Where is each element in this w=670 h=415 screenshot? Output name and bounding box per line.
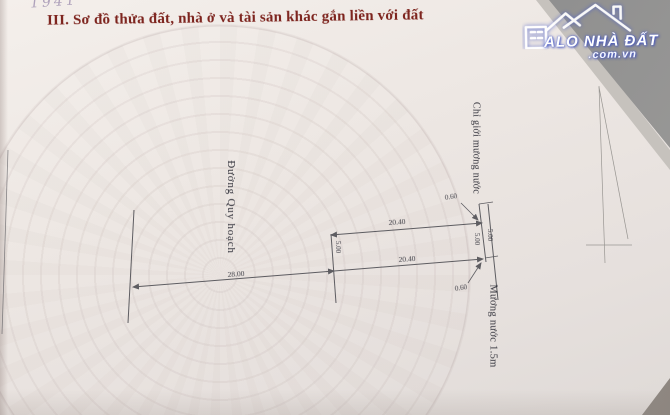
road-left-edge-line: [2, 150, 8, 334]
dimension-distance-to-road: 28.00: [227, 269, 244, 279]
alo-nha-dat-logo: ALO NHÀ ĐẤT .com.vn: [521, 0, 670, 73]
planned-road-edge-line: [128, 210, 134, 323]
gap-tick-bottom: [485, 256, 498, 258]
dimension-plot-bottom: 20.40: [398, 254, 415, 264]
dimension-plot-left: 5.00: [334, 241, 342, 253]
gap-arrow-bottom: [468, 263, 481, 283]
dimension-channel-boundary: 5.00: [486, 229, 494, 241]
plot-top-edge-line: [331, 223, 482, 235]
dimension-plot-right: 5.00: [473, 233, 481, 245]
channel-boundary-label: Chỉ giới mương nước: [471, 102, 482, 194]
gap-tick-top: [479, 202, 493, 204]
water-channel-label: Mương nước 1.5m: [488, 284, 499, 367]
logo-domain-text: .com.vn: [588, 48, 637, 61]
planned-road-label: Đường Quy hoạch: [225, 160, 237, 253]
dimension-plot-top: 20.40: [388, 217, 405, 227]
scanned-land-certificate-page: 1941 III. Sơ đồ thửa đất, nhà ở và tài s…: [0, 0, 670, 415]
gap-arrow-top: [461, 203, 478, 220]
